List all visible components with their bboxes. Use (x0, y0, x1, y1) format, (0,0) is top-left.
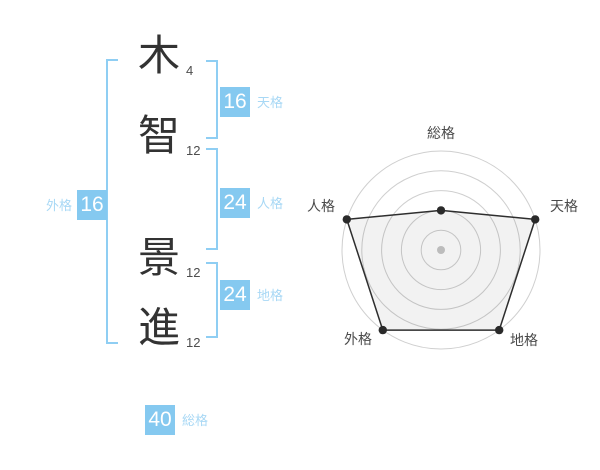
tenkaku-bracket (206, 60, 218, 139)
radar-data-point (343, 215, 351, 223)
radar-data-point (495, 326, 503, 334)
name-char-row: 木 4 (138, 34, 208, 78)
radar-chart: 総格天格地格外格人格 (300, 112, 592, 360)
radar-center-dot (437, 246, 445, 254)
stroke-count: 4 (186, 64, 193, 77)
name-analysis-page: 木 4 智 12 景 12 進 12 16 天格 24 人格 24 地格 外格 … (0, 0, 600, 470)
soukaku-label: 総格 (182, 405, 216, 435)
stroke-count: 12 (186, 266, 200, 279)
radar-axis-label: 人格 (307, 198, 335, 214)
radar-data-point (379, 326, 387, 334)
tenkaku-value-badge: 16 (220, 87, 250, 117)
chikaku-bracket (206, 262, 218, 338)
jinkaku-bracket (206, 148, 218, 250)
gaikaku-label: 外格 (38, 190, 72, 220)
radar-axis-label: 天格 (550, 198, 578, 214)
radar-data-polygon (347, 210, 535, 330)
radar-axis-label: 総格 (427, 125, 455, 141)
name-character: 木 (138, 34, 208, 78)
name-char-row: 景 12 (138, 236, 208, 280)
gaikaku-value-badge: 16 (77, 190, 107, 220)
gaikaku-bracket (106, 59, 118, 344)
name-char-row: 智 12 (138, 114, 208, 158)
radar-axis-label: 外格 (344, 331, 372, 347)
radar-chart-svg: 総格天格地格外格人格 (300, 112, 592, 360)
jinkaku-label: 人格 (257, 188, 291, 218)
soukaku-value-badge: 40 (145, 405, 175, 435)
radar-data-point (531, 215, 539, 223)
chikaku-label: 地格 (257, 280, 291, 310)
name-char-row: 進 12 (138, 306, 208, 350)
tenkaku-label: 天格 (257, 87, 291, 117)
radar-data-point (437, 206, 445, 214)
radar-axis-label: 地格 (510, 332, 538, 348)
jinkaku-value-badge: 24 (220, 188, 250, 218)
stroke-count: 12 (186, 336, 200, 349)
stroke-count: 12 (186, 144, 200, 157)
chikaku-value-badge: 24 (220, 280, 250, 310)
